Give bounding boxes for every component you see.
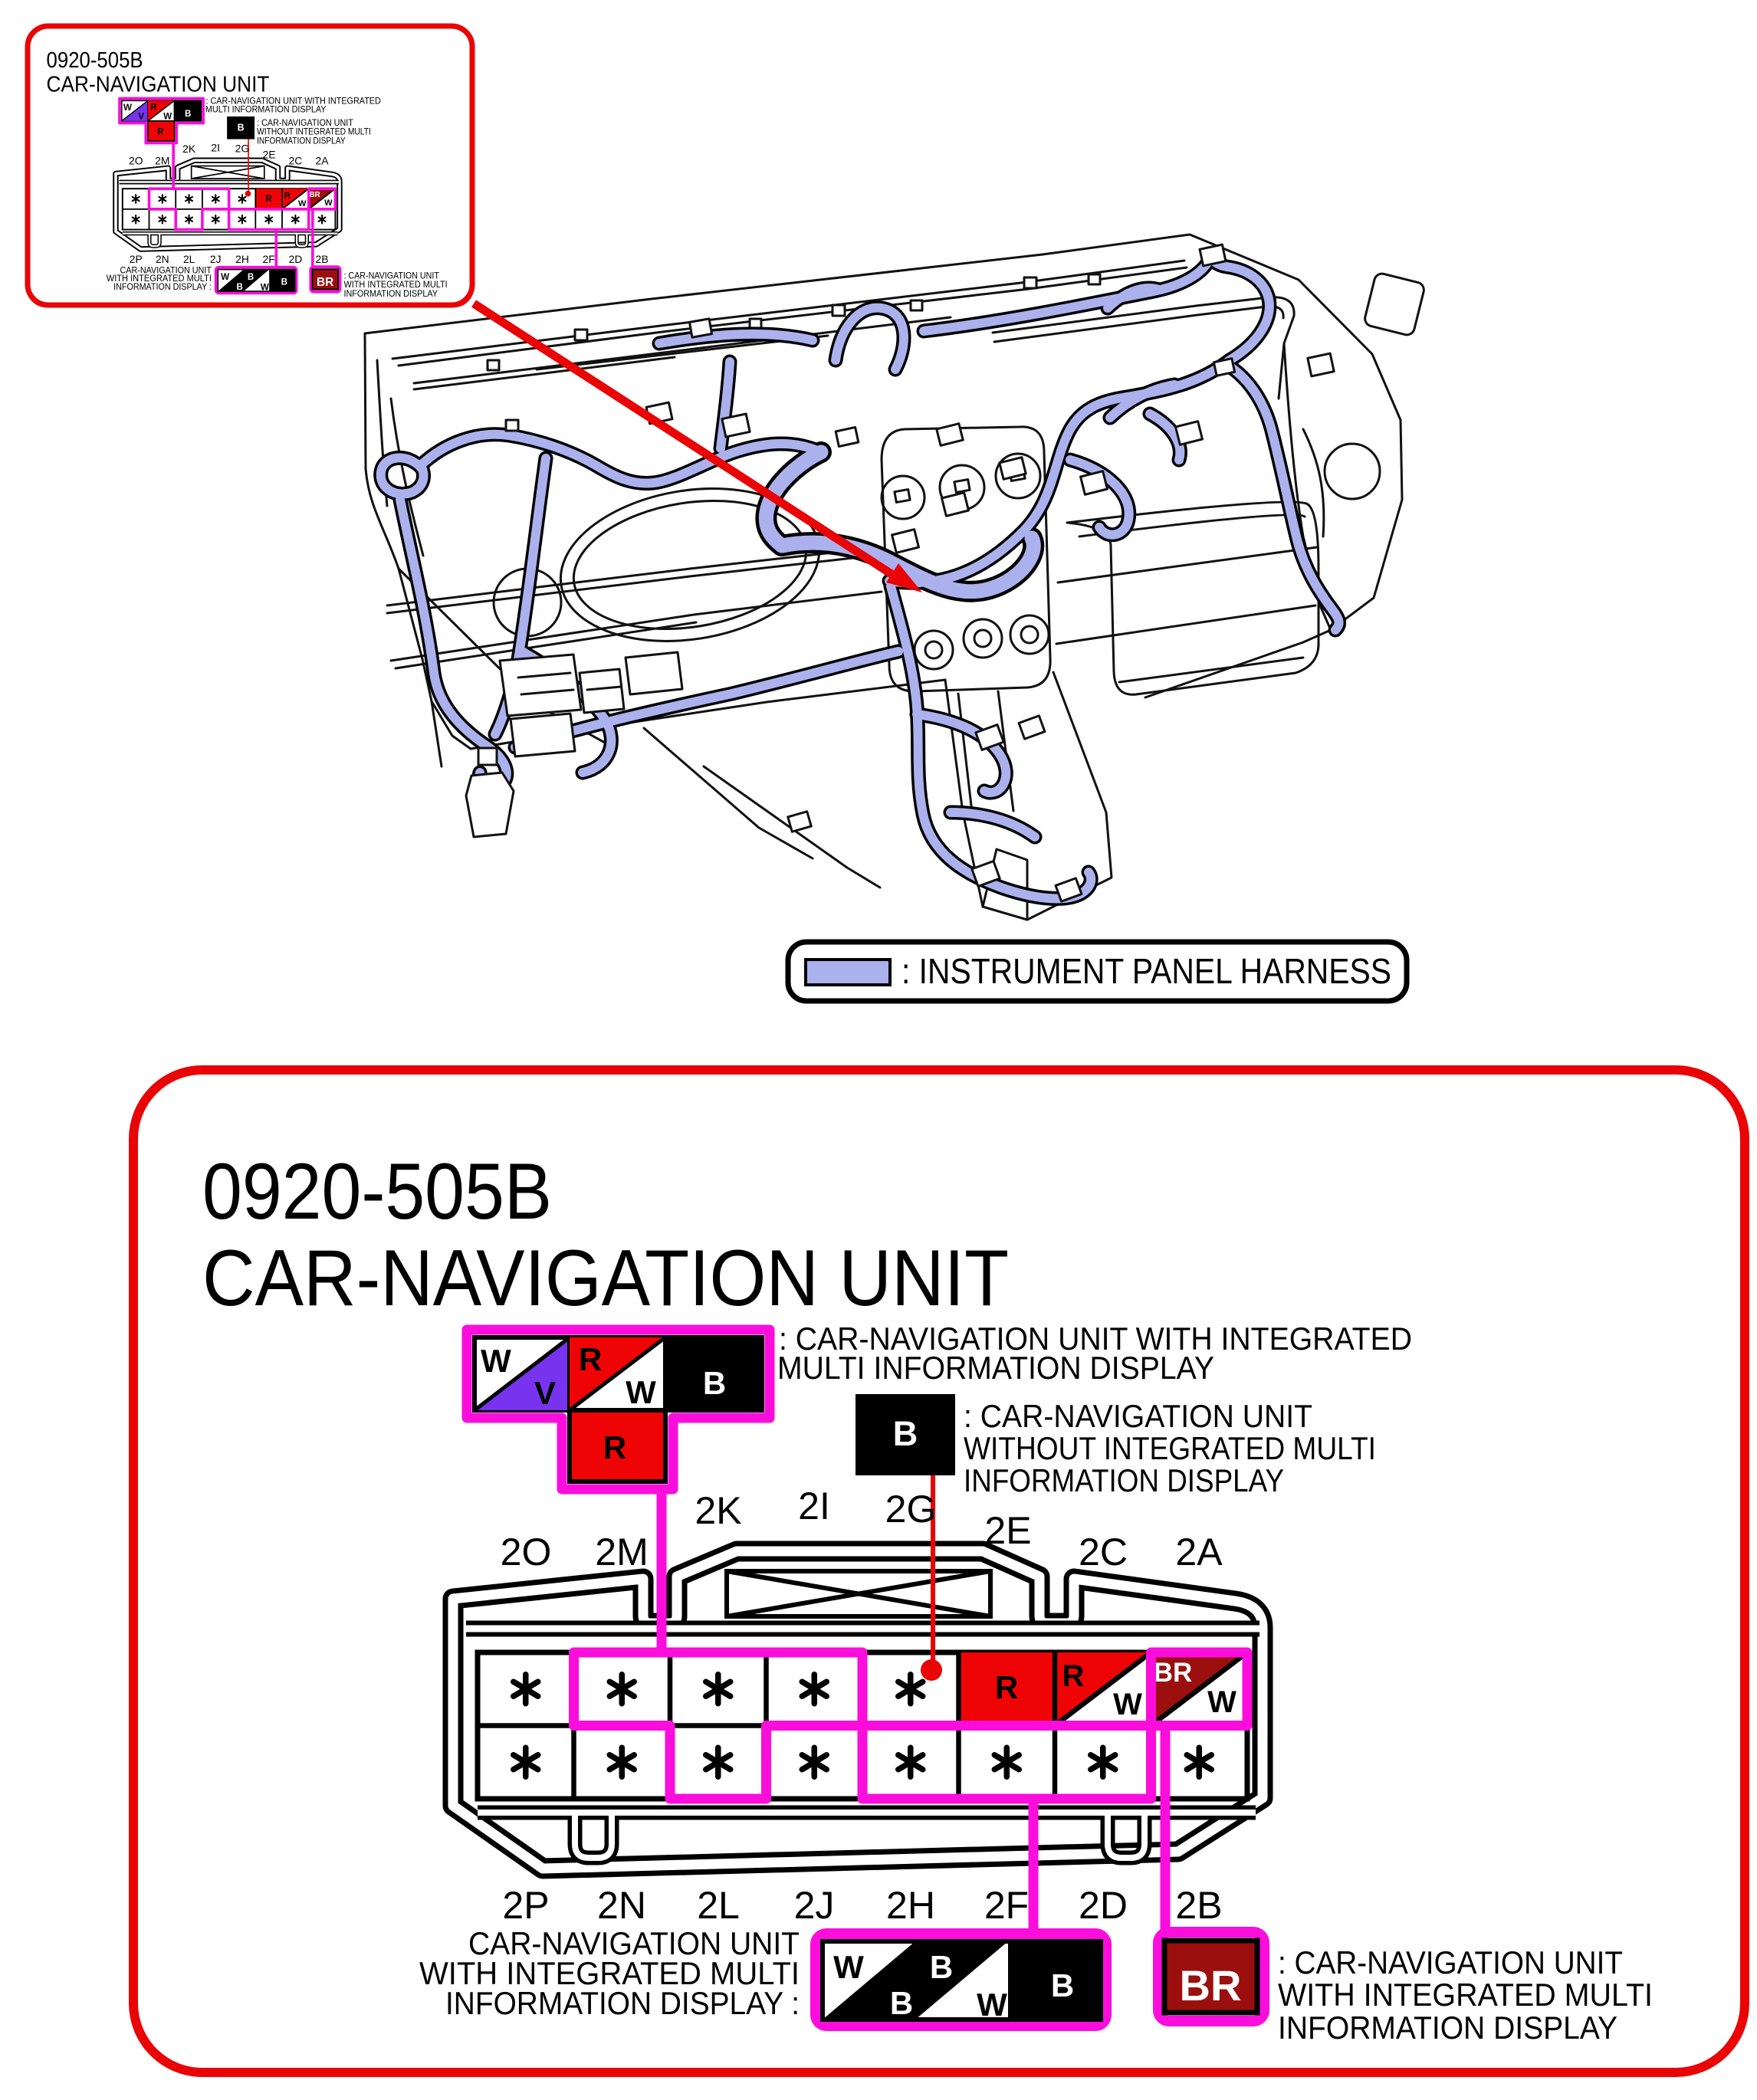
svg-text:: INSTRUMENT PANEL HARNESS: : INSTRUMENT PANEL HARNESS <box>901 951 1391 991</box>
